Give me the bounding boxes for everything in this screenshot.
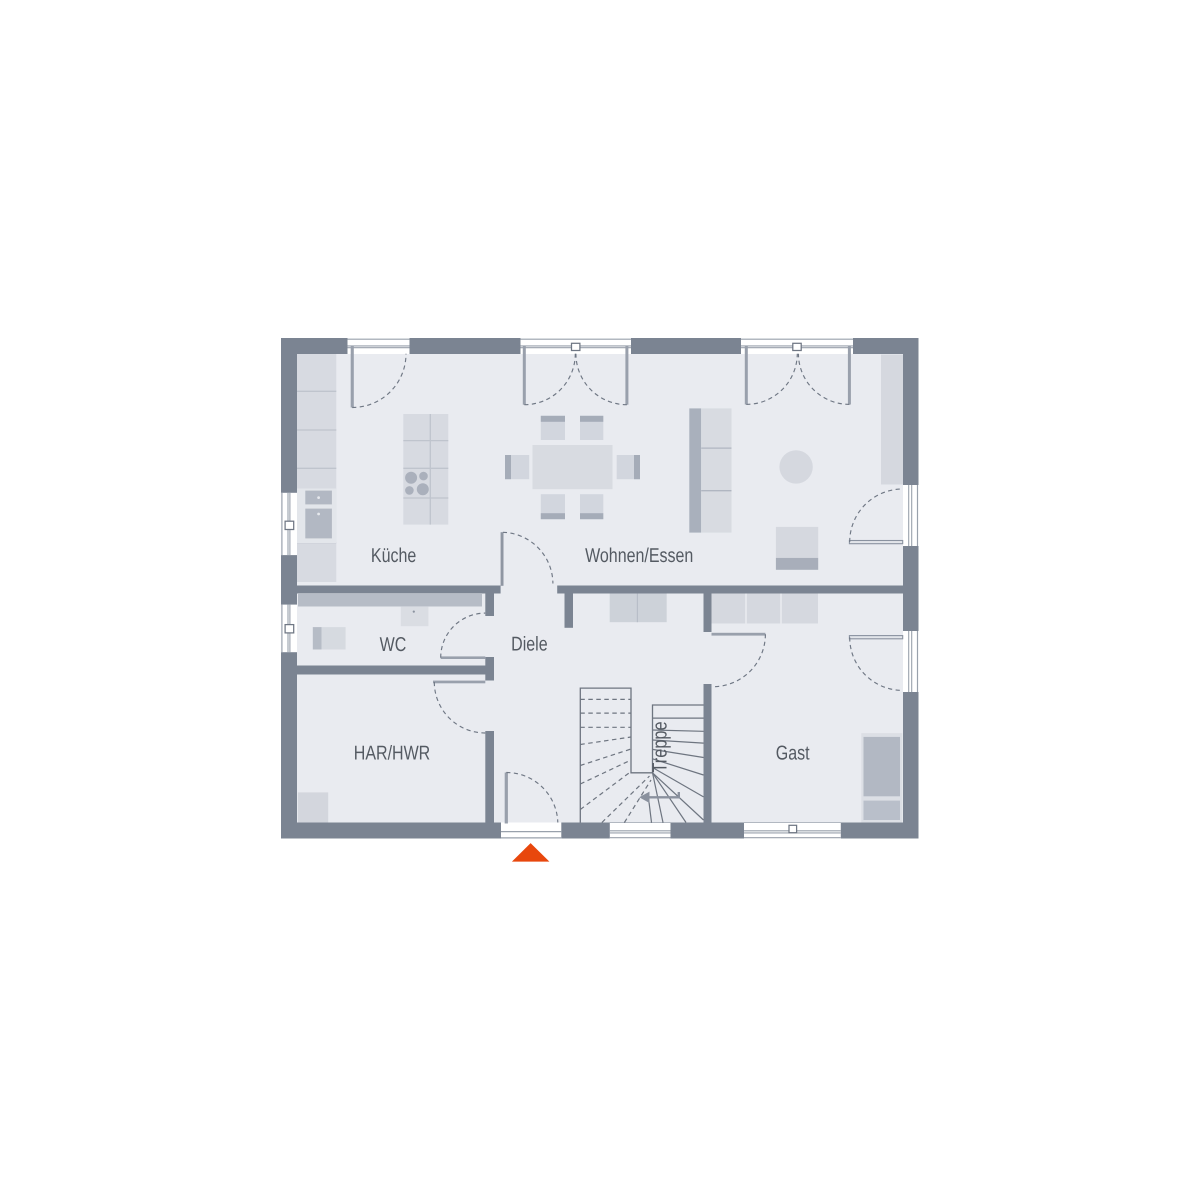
svg-text:WC: WC <box>380 634 407 656</box>
svg-text:Wohnen/Essen: Wohnen/Essen <box>585 545 693 567</box>
svg-text:HAR/HWR: HAR/HWR <box>354 743 430 765</box>
svg-text:Küche: Küche <box>371 545 416 567</box>
svg-text:Gast: Gast <box>776 742 810 764</box>
svg-text:Diele: Diele <box>511 634 547 656</box>
svg-text:Treppe: Treppe <box>649 721 672 772</box>
